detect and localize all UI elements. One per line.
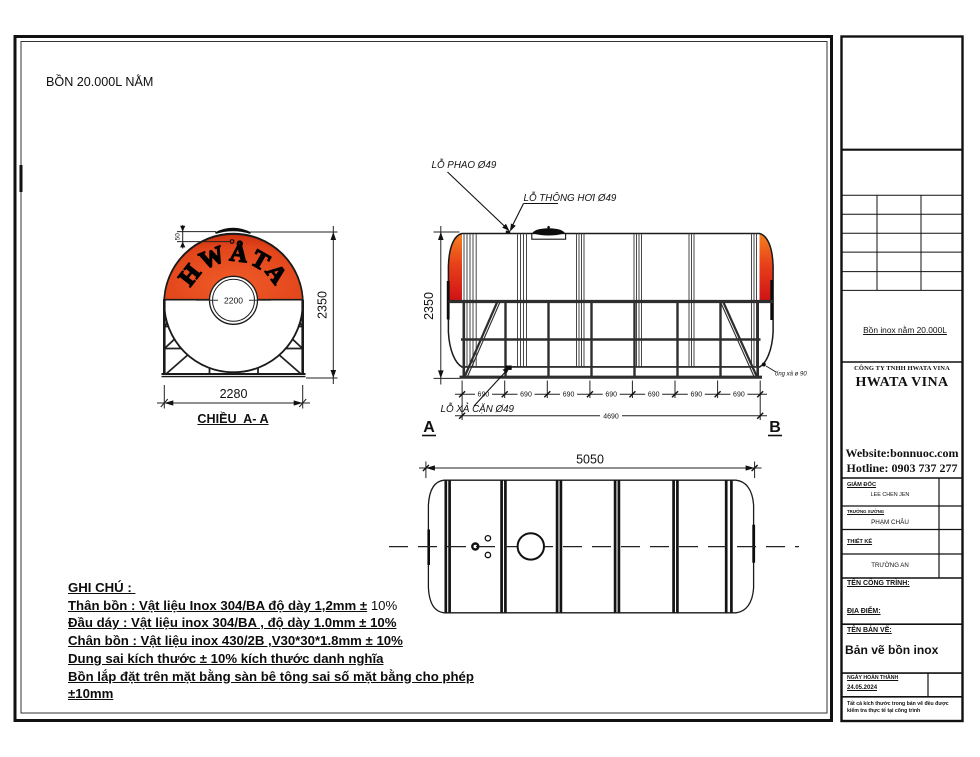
svg-text:690: 690 [733, 392, 745, 399]
svg-text:690: 690 [605, 392, 617, 399]
svg-text:2350: 2350 [316, 291, 330, 319]
svg-text:LỖ PHAO Ø49: LỖ PHAO Ø49 [432, 159, 497, 171]
svg-text:LỖ XẢ CẶN Ø49: LỖ XẢ CẶN Ø49 [441, 403, 515, 415]
svg-text:2350: 2350 [422, 292, 436, 320]
svg-text:690: 690 [520, 392, 532, 399]
svg-text:A: A [423, 419, 435, 436]
svg-text:2280: 2280 [220, 387, 248, 401]
svg-text:50: 50 [175, 233, 182, 241]
svg-text:LỖ THÔNG HƠI Ø49: LỖ THÔNG HƠI Ø49 [524, 192, 617, 204]
svg-text:ống xả ø 90: ống xả ø 90 [775, 371, 807, 378]
svg-text:4690: 4690 [603, 413, 619, 420]
svg-text:690: 690 [563, 392, 575, 399]
svg-text:5050: 5050 [576, 453, 604, 467]
svg-text:690: 690 [690, 392, 702, 399]
svg-text:2200: 2200 [224, 296, 243, 306]
svg-text:B: B [769, 419, 781, 436]
svg-text:690: 690 [648, 392, 660, 399]
